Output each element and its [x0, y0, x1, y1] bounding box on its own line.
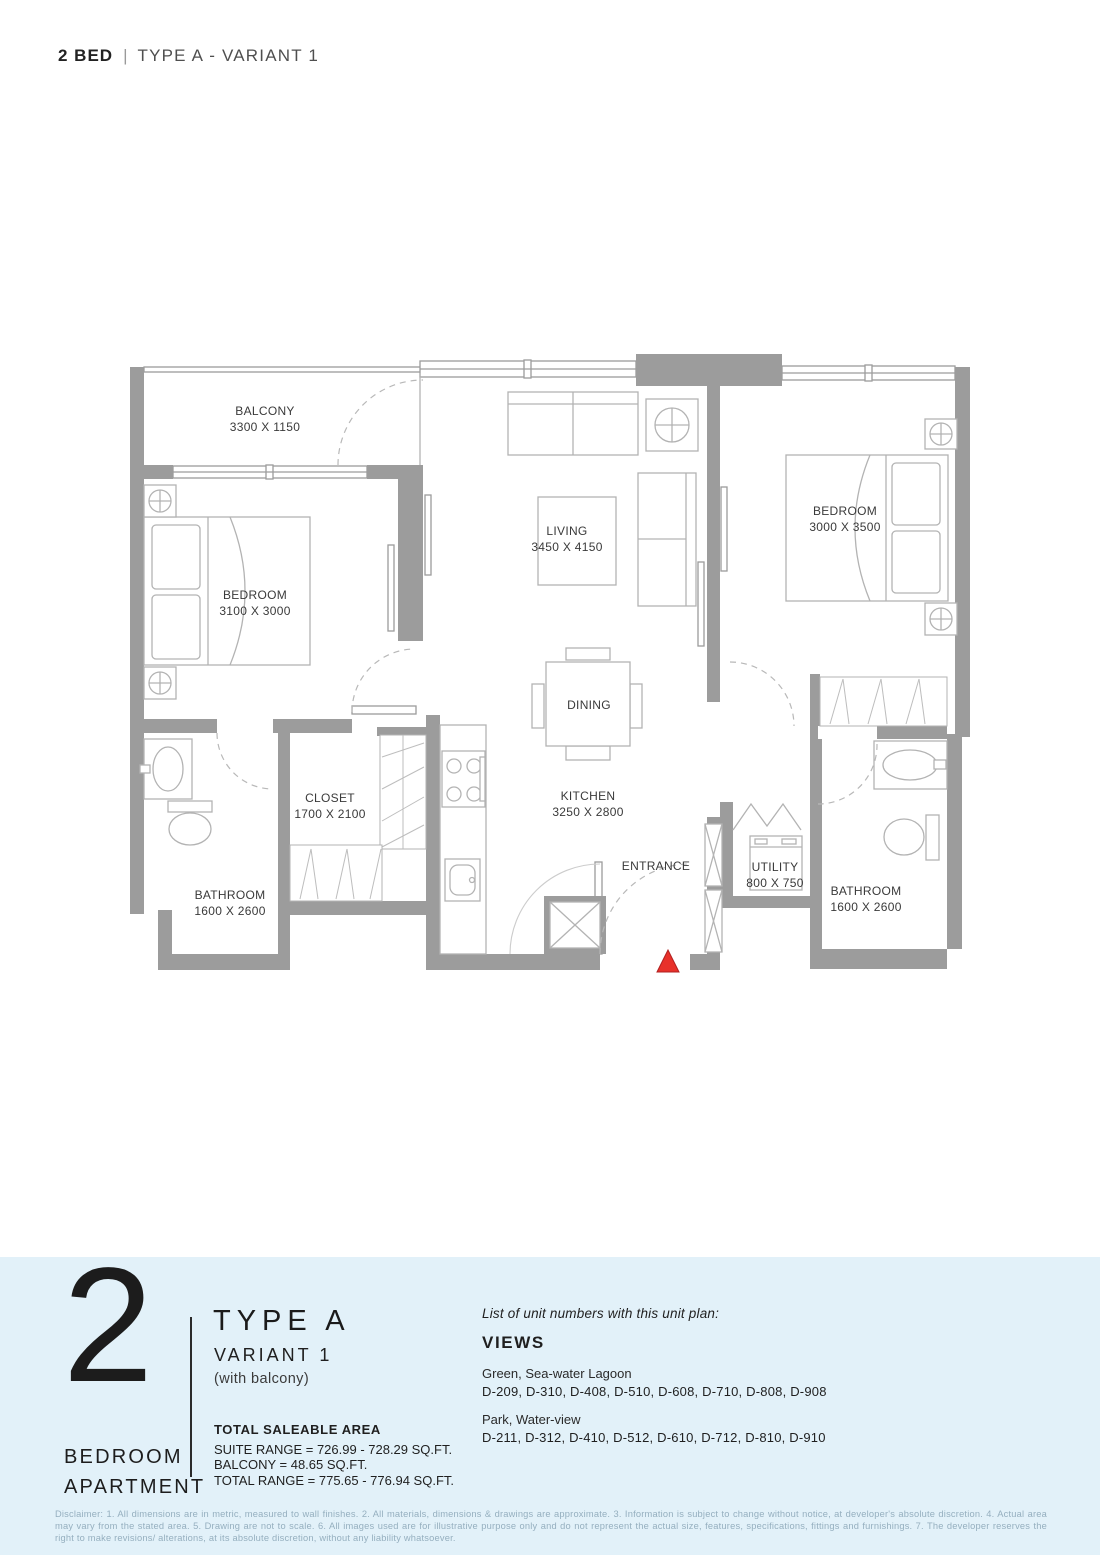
room-label: LIVING — [546, 524, 587, 538]
entrance-marker-icon — [657, 950, 679, 972]
door-arc — [730, 662, 794, 726]
view-group-2-label: Park, Water-view — [482, 1412, 827, 1427]
sliding-panel — [698, 562, 704, 646]
door-arc — [600, 864, 690, 954]
title-type-variant: TYPE A - VARIANT 1 — [138, 46, 320, 66]
room-label: BEDROOM — [223, 588, 287, 602]
sink-icon — [445, 859, 480, 901]
shaft-icon — [705, 824, 722, 886]
unit-count: 2 — [48, 1243, 168, 1406]
title-separator: | — [123, 46, 127, 66]
area-suite-range: SUITE RANGE = 726.99 - 728.29 SQ.FT. — [214, 1442, 454, 1458]
room-dims: 1600 X 2600 — [830, 900, 901, 914]
view-group-1-units: D-209, D-310, D-408, D-510, D-608, D-710… — [482, 1384, 827, 1399]
room-label: CLOSET — [305, 791, 355, 805]
sofa-icon — [638, 473, 696, 606]
room-dims: 1600 X 2600 — [194, 904, 265, 918]
side-unit-icon — [925, 419, 957, 449]
door-arc — [338, 380, 423, 465]
disclaimer-text: Disclaimer: 1. All dimensions are in met… — [55, 1508, 1047, 1544]
side-unit-icon — [144, 485, 176, 517]
toilet-icon — [168, 801, 212, 845]
view-group-1-label: Green, Sea-water Lagoon — [482, 1366, 827, 1381]
side-unit-icon — [144, 667, 176, 699]
door-arc — [818, 744, 877, 804]
type-title: TYPE A — [213, 1305, 351, 1338]
unit-list-intro: List of unit numbers with this unit plan… — [482, 1306, 827, 1321]
double-door-icon — [733, 804, 801, 830]
wardrobe-icon — [820, 677, 947, 726]
type-note: (with balcony) — [214, 1371, 309, 1387]
balcony-railing — [144, 367, 422, 372]
room-label: ENTRANCE — [622, 859, 690, 873]
unit-type-line1: BEDROOM — [64, 1446, 183, 1469]
toilet-icon — [884, 815, 939, 860]
area-heading: TOTAL SALEABLE AREA — [214, 1422, 454, 1438]
room-dims: 3250 X 2800 — [552, 805, 623, 819]
door-leaf — [352, 706, 416, 714]
title-bed-count: 2 BED — [58, 46, 113, 66]
sofa-icon — [508, 392, 638, 455]
room-label: DINING — [567, 698, 611, 712]
room-label: KITCHEN — [561, 789, 616, 803]
bathtub-icon — [140, 739, 192, 799]
saleable-area-block: TOTAL SALEABLE AREA SUITE RANGE = 726.99… — [214, 1422, 454, 1488]
area-total-range: TOTAL RANGE = 775.65 - 776.94 SQ.FT. — [214, 1473, 454, 1489]
room-dims: 3100 X 3000 — [219, 604, 290, 618]
room-label: BATHROOM — [195, 888, 266, 902]
door-arc — [217, 733, 273, 789]
side-unit-icon — [925, 603, 957, 635]
room-label: BEDROOM — [813, 504, 877, 518]
area-balcony: BALCONY = 48.65 SQ.FT. — [214, 1457, 454, 1473]
brochure-page: 2 BED | TYPE A - VARIANT 1 — [0, 0, 1100, 1555]
door-arc — [352, 649, 415, 712]
sliding-panel — [721, 487, 727, 571]
page-title: 2 BED | TYPE A - VARIANT 1 — [58, 46, 319, 66]
floor-plan: BALCONY 3300 X 1150 BEDROOM 3100 X 3000 … — [130, 347, 990, 993]
type-variant: VARIANT 1 — [214, 1345, 332, 1366]
shaft-icon — [705, 890, 722, 952]
side-table-icon — [646, 399, 698, 451]
wardrobe-icon — [290, 845, 382, 901]
unit-numbers-block: List of unit numbers with this unit plan… — [482, 1306, 827, 1458]
shaft-icon — [544, 896, 606, 954]
wardrobe-icon — [380, 735, 426, 849]
room-dims: 1700 X 2100 — [294, 807, 365, 821]
room-dims: 3300 X 1150 — [230, 420, 300, 434]
summary-panel: 2 BEDROOM APARTMENT TYPE A VARIANT 1 (wi… — [0, 1257, 1100, 1555]
room-dims: 3450 X 4150 — [531, 540, 602, 554]
room-label: UTILITY — [752, 860, 799, 874]
bathtub-icon — [874, 741, 947, 789]
unit-type-line2: APARTMENT — [64, 1476, 205, 1499]
view-group-2-units: D-211, D-312, D-410, D-512, D-610, D-712… — [482, 1430, 827, 1445]
room-dims: 800 X 750 — [746, 876, 803, 890]
views-heading: VIEWS — [482, 1333, 827, 1353]
sliding-panel — [388, 545, 394, 631]
vertical-divider — [190, 1317, 192, 1477]
room-label: BATHROOM — [831, 884, 902, 898]
room-dims: 3000 X 3500 — [809, 520, 880, 534]
stove-icon — [442, 751, 485, 807]
room-label: BALCONY — [235, 404, 294, 418]
sliding-panel — [425, 495, 431, 575]
